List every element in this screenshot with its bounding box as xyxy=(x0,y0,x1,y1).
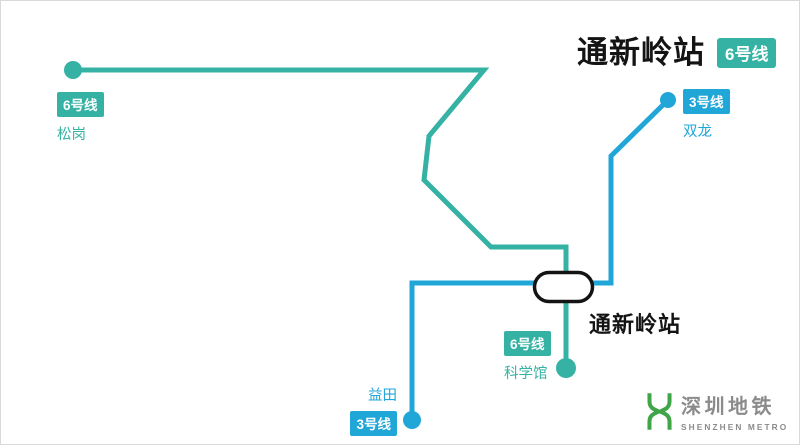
station-label-songgang: 6号线 松岗 xyxy=(57,92,104,144)
station-name-yitian: 益田 xyxy=(368,384,397,405)
page-title: 通新岭站 xyxy=(577,27,705,72)
line3-terminus-yitian-dot xyxy=(403,411,421,429)
line6-badge: 6号线 xyxy=(504,331,551,356)
logo-text-block: 深圳地铁 SHENZHEN METRO xyxy=(681,390,788,432)
line6-badge: 6号线 xyxy=(57,92,104,117)
station-label-yitian: 益田 3号线 xyxy=(331,384,397,436)
station-label-kexueguan: 6号线 科学馆 xyxy=(504,331,551,383)
logo-mark-strokes xyxy=(649,393,669,429)
metro-map-page: 通新岭站 6号线 6号线 松岗 3号线 双龙 6号线 科学馆 益田 3号线 通新… xyxy=(0,0,800,445)
header-line6-badge: 6号线 xyxy=(717,38,776,68)
line3-terminus-shuanglong-dot xyxy=(660,92,676,108)
station-name-shuanglong: 双龙 xyxy=(683,120,712,141)
shenzhen-metro-logo-icon xyxy=(644,392,675,431)
station-label-shuanglong: 3号线 双龙 xyxy=(683,89,730,141)
station-name-songgang: 松岗 xyxy=(57,123,86,144)
tongxinling-station-marker xyxy=(535,273,593,302)
line3-badge: 3号线 xyxy=(683,89,730,114)
station-name-kexueguan: 科学馆 xyxy=(504,362,548,383)
station-name-tongxinling: 通新岭站 xyxy=(589,307,681,339)
line6-terminus-kexueguan-dot xyxy=(556,358,576,378)
logo-name-cn: 深圳地铁 xyxy=(681,390,788,419)
shenzhen-metro-logo: 深圳地铁 SHENZHEN METRO xyxy=(644,390,788,432)
line6-terminus-songgang-dot xyxy=(64,61,82,79)
line3-badge: 3号线 xyxy=(350,411,397,436)
line6-path xyxy=(73,70,566,368)
logo-name-en: SHENZHEN METRO xyxy=(681,422,788,432)
